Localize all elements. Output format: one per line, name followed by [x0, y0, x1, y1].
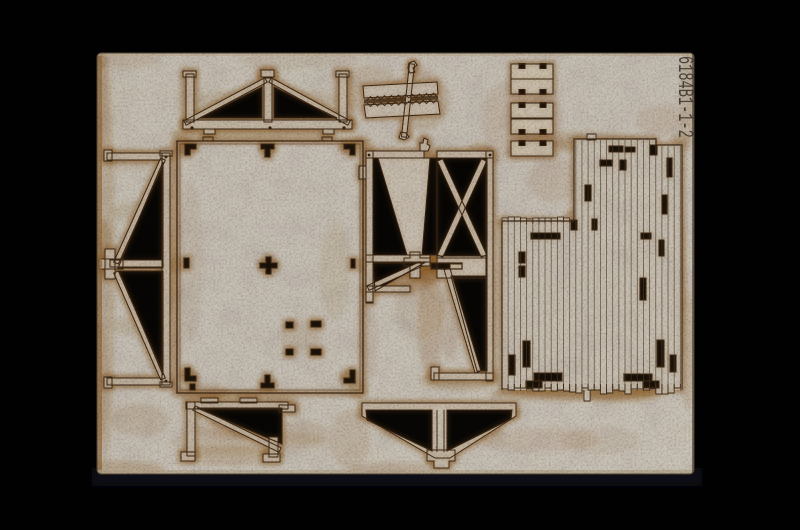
svg-text:6184B1-1-2: 6184B1-1-2 [672, 56, 696, 138]
